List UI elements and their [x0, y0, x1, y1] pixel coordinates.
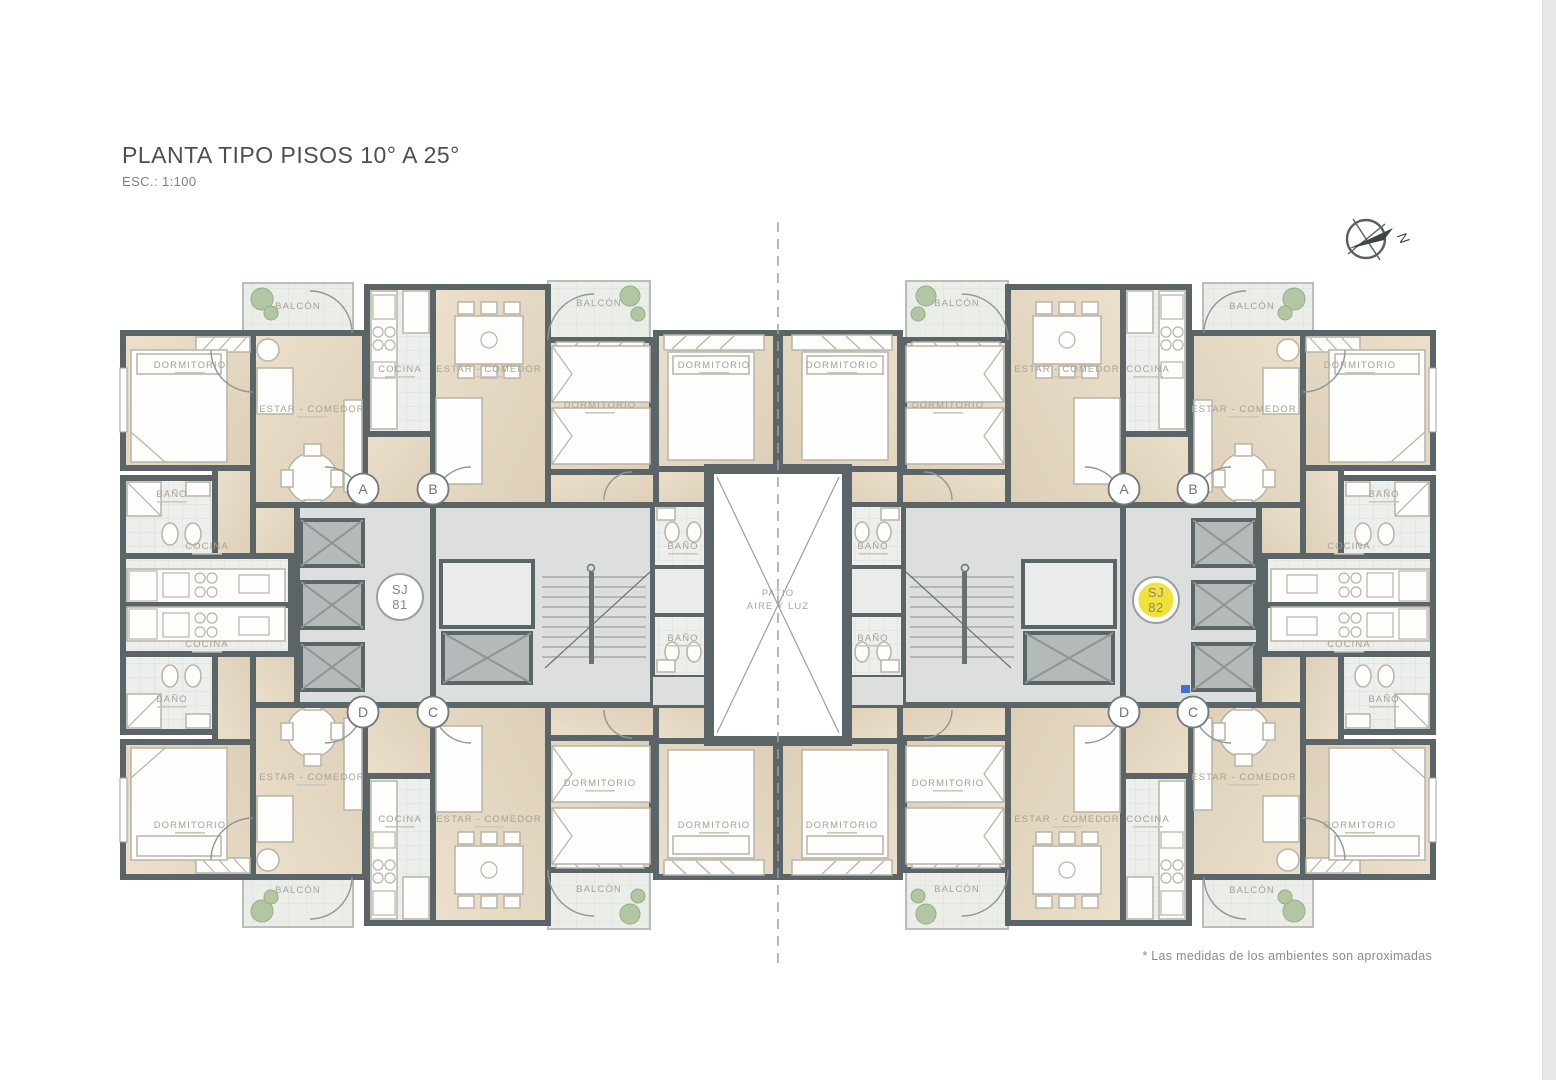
axis-letter: C	[428, 704, 438, 720]
room-dims-line	[1229, 784, 1259, 786]
room-label: COCINA	[1327, 639, 1371, 650]
north-arrow-icon: N	[1347, 219, 1413, 260]
axis-letter: C	[1188, 704, 1198, 720]
room-dims-line	[385, 376, 415, 378]
room-dims-line	[585, 412, 615, 414]
room-dims-line	[1133, 376, 1163, 378]
footnote: * Las medidas de los ambientes son aprox…	[1142, 949, 1432, 963]
unit-number: 81	[392, 597, 407, 612]
room-label: DORMITORIO	[154, 820, 227, 831]
lamp	[257, 339, 279, 361]
axis-marker-a: A	[348, 474, 379, 505]
unit-code: SJ	[392, 582, 408, 597]
room-dims-line	[1345, 372, 1375, 374]
room-dims-line	[585, 790, 615, 792]
elevator-shaft	[301, 520, 363, 690]
unit-marker-sj-82: SJ82	[1133, 577, 1179, 623]
axis-marker-d: D	[1109, 697, 1140, 728]
room-label: BALCÓN	[934, 884, 980, 895]
kitchen-counter	[127, 569, 285, 603]
page-scrollbar[interactable]	[1542, 0, 1556, 1080]
axis-marker-c: C	[1178, 697, 1209, 728]
room-label: ESTAR - COMEDOR	[1191, 404, 1297, 415]
room-dims-line	[699, 832, 729, 834]
room-dims-line	[668, 645, 698, 647]
room-dims-line	[474, 826, 504, 828]
room-label: BAÑO	[857, 541, 888, 552]
room-label: DORMITORIO	[678, 820, 751, 831]
room-dims-line	[175, 372, 205, 374]
axis-marker-c: C	[418, 697, 449, 728]
room-label: ESTAR - COMEDOR	[1014, 814, 1120, 825]
room-label: DORMITORIO	[1324, 360, 1397, 371]
room-label: DORMITORIO	[154, 360, 227, 371]
room-dims-line	[1052, 376, 1082, 378]
room-label: BAÑO	[667, 633, 698, 644]
patio-label-line: AIRE Y LUZ	[747, 601, 809, 612]
room-label: DORMITORIO	[912, 400, 985, 411]
room-dims-line	[1334, 553, 1364, 555]
room-dims-line	[1345, 832, 1375, 834]
room-dims-line	[175, 832, 205, 834]
north-letter: N	[1394, 230, 1413, 248]
room-dims-line	[827, 372, 857, 374]
room-label: BALCÓN	[576, 884, 622, 895]
axis-marker-d: D	[348, 697, 379, 728]
room-dims-line	[933, 412, 963, 414]
room-label: BALCÓN	[1229, 885, 1275, 896]
axis-letter: A	[1119, 481, 1129, 497]
room-label: DORMITORIO	[912, 778, 985, 789]
floorplan-page: PLANTA TIPO PISOS 10° A 25° ESC.: 1:100	[0, 0, 1556, 1080]
room-dims-line	[297, 784, 327, 786]
room-label: DORMITORIO	[564, 400, 637, 411]
patio-label-line: PATIO	[762, 588, 795, 599]
room-label: BAÑO	[857, 633, 888, 644]
axis-letter: D	[1119, 704, 1129, 720]
room-label: COCINA	[378, 364, 422, 375]
room-dims-line	[157, 706, 187, 708]
room-label: ESTAR - COMEDOR	[1014, 364, 1120, 375]
room-label: BAÑO	[1368, 489, 1399, 500]
room-dims-line	[1133, 826, 1163, 828]
room-label: BAÑO	[1368, 694, 1399, 705]
room-dims-line	[1369, 501, 1399, 503]
room-label: BALCÓN	[576, 298, 622, 309]
room-label: ESTAR - COMEDOR	[436, 364, 542, 375]
room-label: BALCÓN	[275, 885, 321, 896]
building-left-wing	[120, 281, 778, 929]
room-dims-line	[699, 372, 729, 374]
floor-plan-drawing: N BALCÓNDORMITORIOESTAR - COMEDORCOCINAE…	[0, 0, 1556, 1080]
room-label: DORMITORIO	[1324, 820, 1397, 831]
room-dims-line	[827, 832, 857, 834]
room-dims-line	[192, 553, 222, 555]
room-dims-line	[1369, 706, 1399, 708]
room-label: DORMITORIO	[564, 778, 637, 789]
room-label: ESTAR - COMEDOR	[436, 814, 542, 825]
sofa	[436, 398, 482, 484]
room-label: COCINA	[1126, 364, 1170, 375]
room-label: BAÑO	[667, 541, 698, 552]
axis-letter: A	[358, 481, 368, 497]
axis-letter: B	[428, 481, 437, 497]
room-dims-line	[858, 645, 888, 647]
room-label: COCINA	[1327, 541, 1371, 552]
room-dims-line	[858, 553, 888, 555]
room-label: DORMITORIO	[806, 360, 879, 371]
room-label: DORMITORIO	[806, 820, 879, 831]
room-dims-line	[157, 501, 187, 503]
axis-marker-b: B	[1178, 474, 1209, 505]
room-label: COCINA	[185, 639, 229, 650]
room-dims-line	[1229, 416, 1259, 418]
room-label: COCINA	[185, 541, 229, 552]
room-label: BALCÓN	[1229, 301, 1275, 312]
room-dims-line	[933, 790, 963, 792]
room-label: BAÑO	[156, 489, 187, 500]
room-dims-line	[668, 553, 698, 555]
room-dims-line	[1052, 826, 1082, 828]
room-label: ESTAR - COMEDOR	[259, 772, 365, 783]
room-label: ESTAR - COMEDOR	[259, 404, 365, 415]
blue-marker	[1181, 685, 1190, 693]
room-dims-line	[385, 826, 415, 828]
room-dims-line	[1334, 651, 1364, 653]
room-label: BALCÓN	[275, 301, 321, 312]
unit-code: SJ	[1148, 585, 1164, 600]
room-label: BAÑO	[156, 694, 187, 705]
room-dims-line	[474, 376, 504, 378]
room-label: DORMITORIO	[678, 360, 751, 371]
room-label: BALCÓN	[934, 298, 980, 309]
axis-marker-a: A	[1109, 474, 1140, 505]
room-label: COCINA	[378, 814, 422, 825]
room-label: ESTAR - COMEDOR	[1191, 772, 1297, 783]
room-dims-line	[297, 416, 327, 418]
unit-number: 82	[1148, 600, 1163, 615]
room-label: COCINA	[1126, 814, 1170, 825]
room-dims-line	[192, 651, 222, 653]
axis-letter: D	[358, 704, 368, 720]
axis-letter: B	[1188, 481, 1197, 497]
axis-marker-b: B	[418, 474, 449, 505]
unit-marker-sj-81: SJ81	[377, 574, 423, 620]
